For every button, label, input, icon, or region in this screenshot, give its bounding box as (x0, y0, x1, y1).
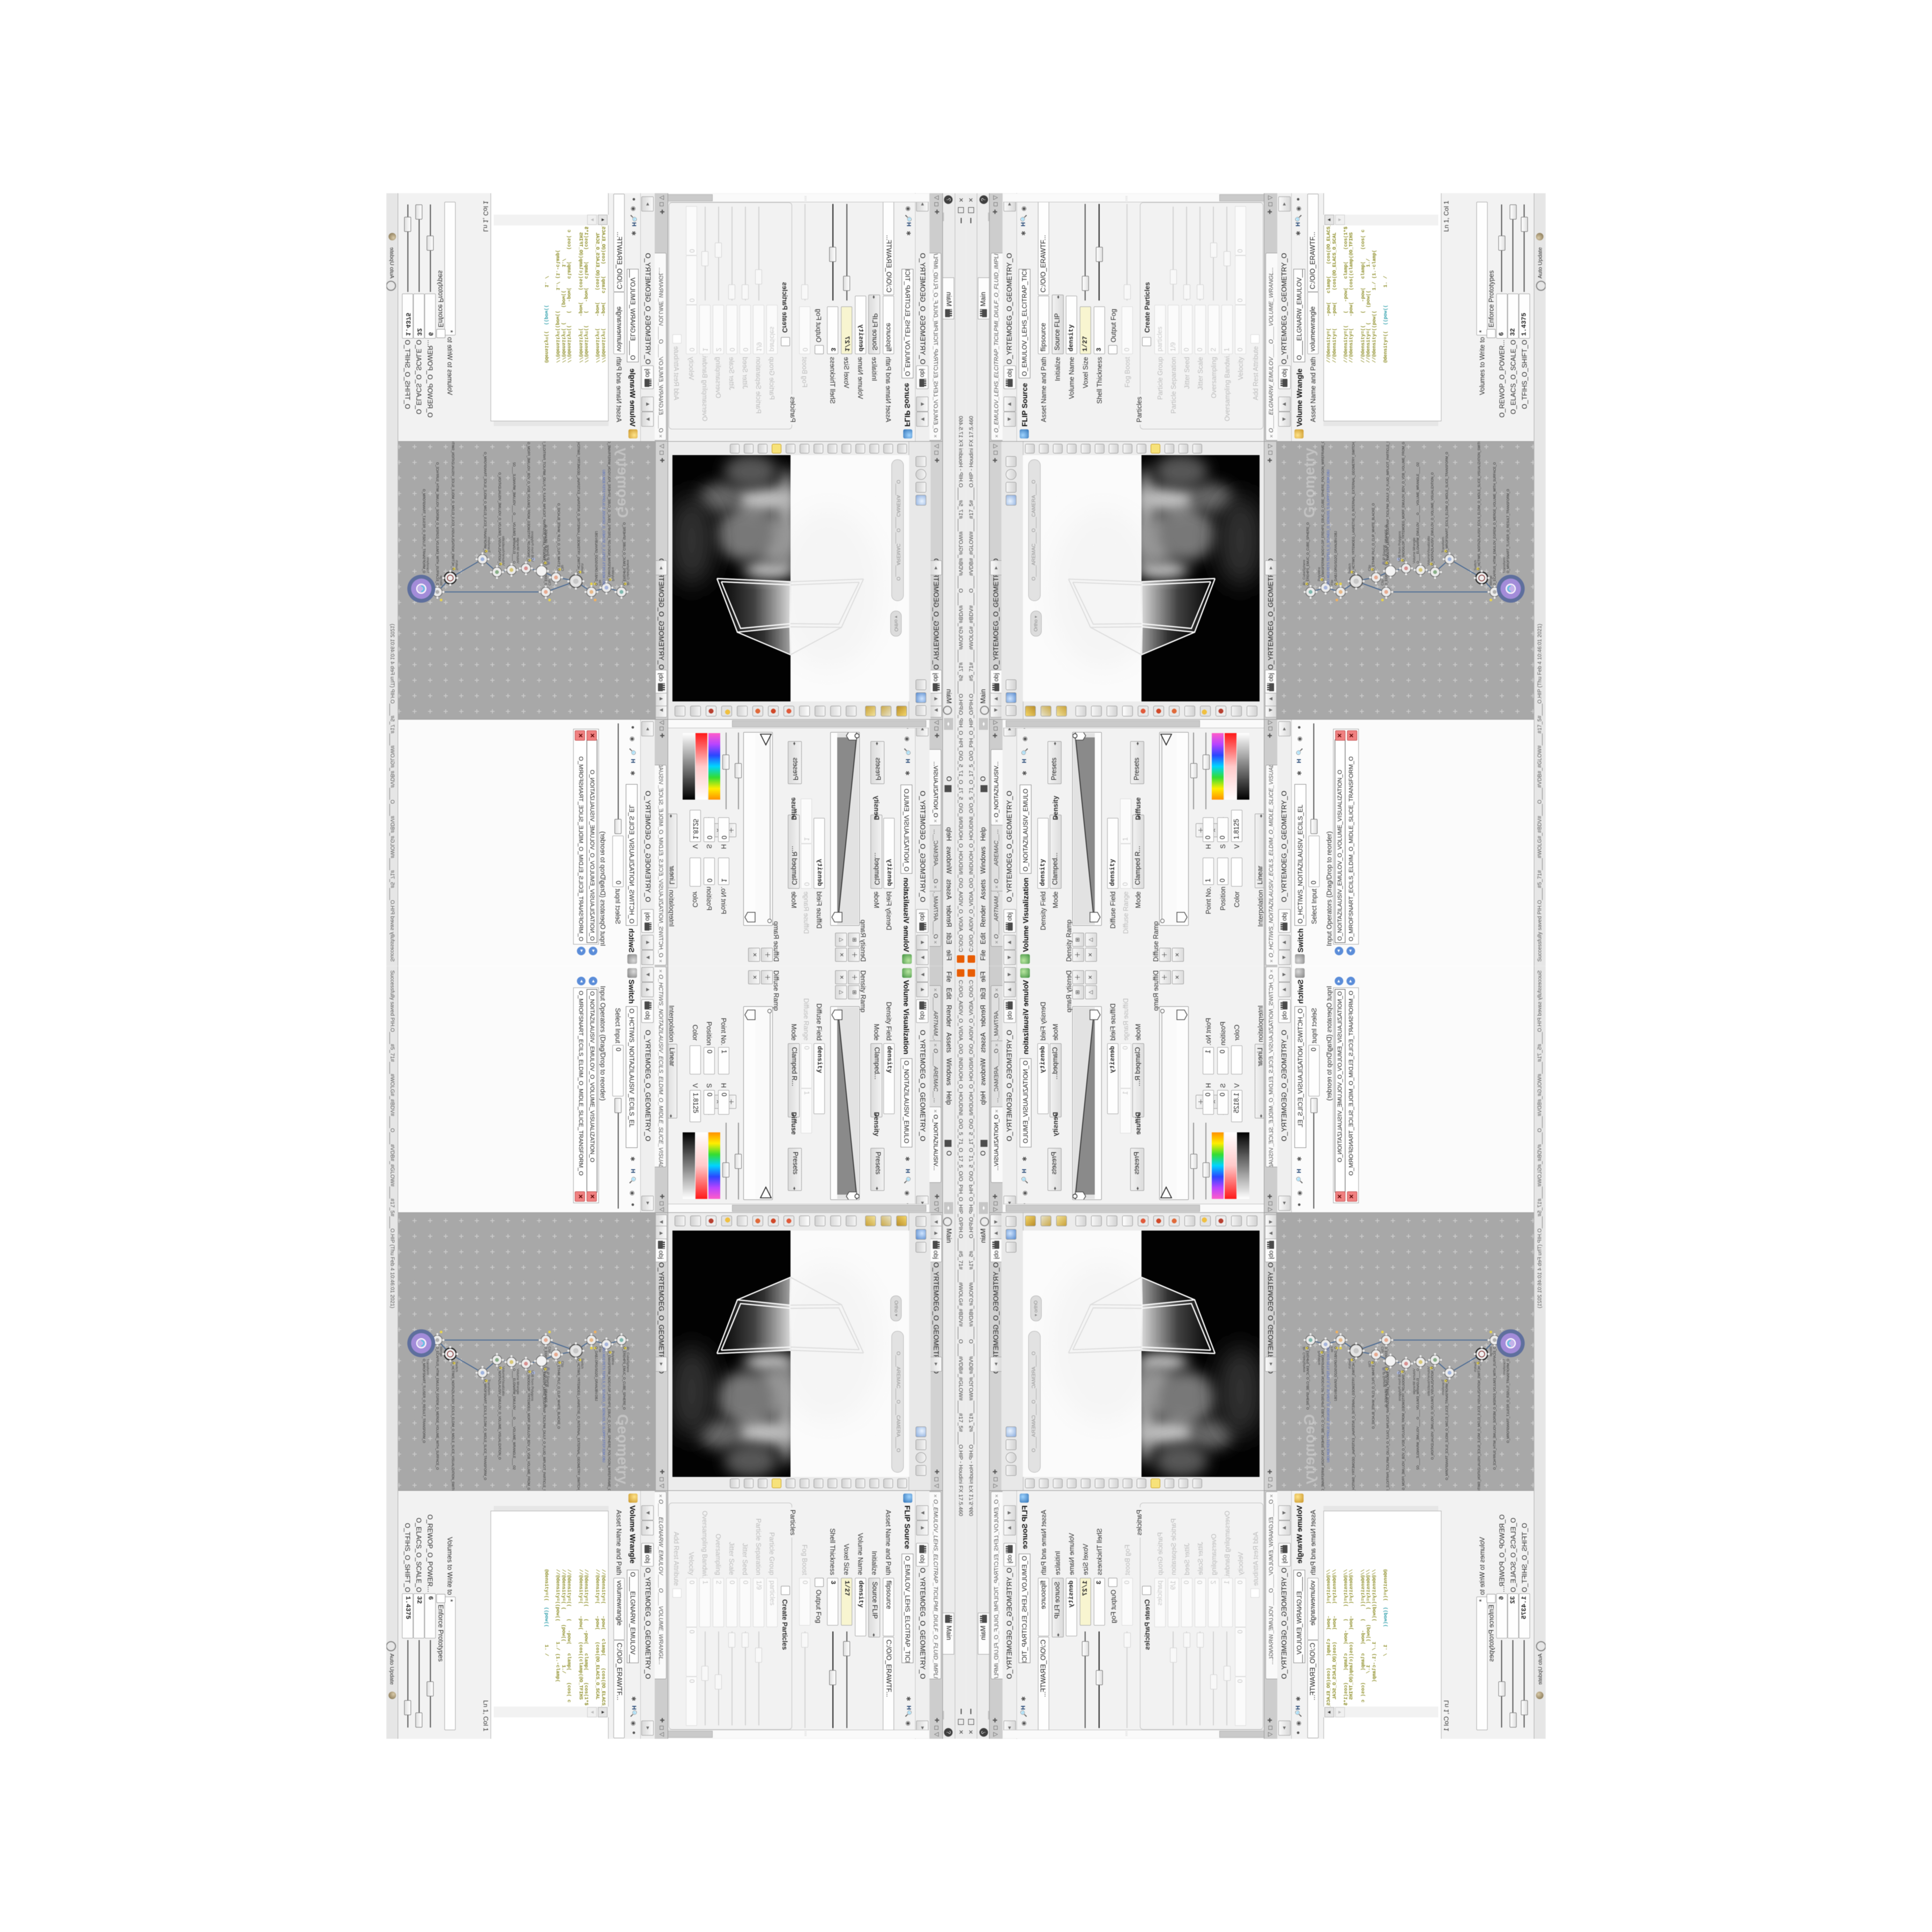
svg-text:an_CubeSphere: an_CubeSphere (626, 1346, 630, 1372)
svg-text:Switch: Switch (580, 563, 584, 574)
svg-text:Transform: Transform (487, 1379, 491, 1395)
svg-text:PolyWire: PolyWire (1318, 1351, 1321, 1365)
svg-text:O____ELGNARW_EMULOV____O____VO: O____ELGNARW_EMULOV____O____VOLUME_WRANG… (512, 1368, 515, 1470)
svg-text:Geometry: Geometry (1301, 448, 1318, 518)
svg-text:Switch: Switch (1348, 1358, 1352, 1369)
svg-text:VDB from Polygons: VDB from Polygons (530, 1370, 534, 1401)
svg-text:O_EMULOV_LEHS_ELCITRAP_TICILPM: O_EMULOV_LEHS_ELCITRAP_TICILPMI_DIULF_O_… (1387, 442, 1390, 565)
svg-text:Clip: Clip (547, 1346, 551, 1353)
svg-text:O_EREHPS_EMUC_O_CUBE_SPHERE_O: O_EREHPS_EMUC_O_CUBE_SPHERE_O (1307, 522, 1310, 586)
svg-text:PolyWire: PolyWire (611, 1351, 614, 1365)
svg-text:Volume Wrangle: Volume Wrangle (1413, 537, 1416, 563)
svg-text:O_NOITAZILAUSIV_EMULOV_O_VOLUM: O_NOITAZILAUSIV_EMULOV_O_VOLUME_VISUALIZ… (497, 472, 501, 566)
svg-text:Volume Wrangle: Volume Wrangle (516, 1368, 519, 1395)
svg-text:Clip: Clip (560, 1361, 564, 1367)
svg-text:PolyWire: PolyWire (611, 567, 614, 581)
svg-text:O_EREHPS_EMUC_O_CUBE_SPHERE_O: O_EREHPS_EMUC_O_CUBE_SPHERE_O (1307, 1346, 1310, 1410)
svg-text:FLIP Source: FLIP Source (546, 545, 550, 565)
svg-text:O_ECAFRUS_HTIW_EMULOV_EGREM_O_: O_ECAFRUS_HTIW_EMULOV_EGREM_O_MERGE_VOLU… (435, 462, 438, 586)
svg-text:O_EMASFERIW_NOGYLOP_EREHPS_EBU: O_EMASFERIW_NOGYLOP_EREHPS_EBUC_O_CUBE_S… (607, 1351, 610, 1490)
svg-text:O____ELGNARW_EMULOV____O____VO: O____ELGNARW_EMULOV____O____VOLUME_WRANG… (1417, 462, 1420, 563)
svg-text:Transform: Transform (1503, 557, 1506, 573)
svg-text:FLIP Source: FLIP Source (1382, 545, 1386, 565)
svg-text:Transform: Transform (1441, 1379, 1445, 1395)
svg-text:O_SNOGILOP_YRTEMOEG_MORF_EMULO: O_SNOGILOP_YRTEMOEG_MORF_EMULOV_BDV_O_VD… (526, 442, 530, 562)
svg-text:Merge: Merge (1489, 1346, 1493, 1357)
svg-text:Switch: Switch (1474, 1362, 1477, 1372)
svg-text:O_HCTIWS_NOITAZILAUSIV_ECILS_E: O_HCTIWS_NOITAZILAUSIV_ECILS_ELDIM_O_MID… (451, 442, 454, 570)
svg-text:O_MROFSNART_TLUSER_O_RESULT_TR: O_MROFSNART_TLUSER_O_RESULT_TRANSFORM_O (422, 489, 425, 573)
svg-text:O_MROFSNART_ECILS_ELDIM_O_MIDL: O_MROFSNART_ECILS_ELDIM_O_MIDLE_SLICE_TR… (1446, 1379, 1449, 1480)
svg-text:O_DABJ.ORG/SG2O_GRANJBV.OBJ: O_DABJ.ORG/SG2O_GRANJBV.OBJ (1335, 1346, 1338, 1401)
svg-text:File: File (1330, 580, 1334, 586)
svg-text:VolumeVisualizatio: VolumeVisualizatio (1427, 1366, 1431, 1396)
svg-text:Transform: Transform (1503, 1359, 1506, 1375)
svg-text:JBO.MD3.PETS.TEPELS_O_5DJNEG_O: JBO.MD3.PETS.TEPELS_O_5DJNEG_O_GENUS5_D.… (602, 1346, 605, 1462)
svg-text:Clip: Clip (1381, 579, 1385, 586)
svg-text:Merge: Merge (439, 575, 443, 586)
svg-text:an_CubeSphere: an_CubeSphere (1302, 1346, 1306, 1372)
svg-text:Switch: Switch (580, 1358, 584, 1369)
svg-text:File: File (598, 580, 602, 586)
svg-text:O_SNOGILOP_YRTEMOEG_MORF_EMULO: O_SNOGILOP_YRTEMOEG_MORF_EMULOV_BDV_O_VD… (1402, 442, 1406, 562)
svg-text:O_EMASFERIW_NOGYLOP_EREHPS_EBU: O_EMASFERIW_NOGYLOP_EREHPS_EBUC_O_CUBE_S… (607, 442, 610, 581)
svg-text:Geometry: Geometry (1301, 1414, 1318, 1484)
svg-text:Clip: Clip (547, 579, 551, 586)
svg-text:JBO.MD3.PETS.TEPELS_O_5DJNEG_O: JBO.MD3.PETS.TEPELS_O_5DJNEG_O_GENUS5_D.… (602, 470, 605, 586)
svg-text:Merge: Merge (1489, 575, 1493, 586)
svg-text:FLIP Source: FLIP Source (546, 1367, 550, 1387)
svg-text:O_EMASFERIW_NOGYLOP_EREHPS_EBU: O_EMASFERIW_NOGYLOP_EREHPS_EBUC_O_CUBE_S… (1322, 442, 1325, 581)
svg-text:O_HCTIWS_YRTEMOEG_LANRETXE_O_I: O_HCTIWS_YRTEMOEG_LANRETXE_O_INTERNAL_EX… (576, 442, 580, 574)
svg-text:Clip: Clip (1368, 1361, 1372, 1367)
svg-text:O_EMASFERIW_NOGYLOP_EREHPS_EBU: O_EMASFERIW_NOGYLOP_EREHPS_EBUC_O_CUBE_S… (1322, 1351, 1325, 1490)
svg-text:O_HCTIWS_YRTEMOEG_LANRETXE_O_I: O_HCTIWS_YRTEMOEG_LANRETXE_O_INTERNAL_EX… (576, 1358, 580, 1490)
svg-text:VolumeVisualizatio: VolumeVisualizatio (501, 1366, 505, 1396)
svg-text:Switch: Switch (455, 1362, 458, 1372)
svg-text:Transform: Transform (426, 557, 429, 573)
svg-text:Transform: Transform (426, 1359, 429, 1375)
svg-text:O_EREHPS_EMUC_O_CUBE_SPHERE_O: O_EREHPS_EMUC_O_CUBE_SPHERE_O (622, 1346, 625, 1410)
svg-text:O_MROFSNART_ECILS_ELDIM_O_MIDL: O_MROFSNART_ECILS_ELDIM_O_MIDLE_SLICE_TR… (483, 452, 486, 553)
svg-text:O_EMULOV_LEHS_ELCITRAP_TICILPM: O_EMULOV_LEHS_ELCITRAP_TICILPMI_DIULF_O_… (542, 442, 545, 565)
svg-text:O_ETIHW_PILC_O_CLIP_WHITE_BLAC: O_ETIHW_PILC_O_CLIP_WHITE_BLACKE_O (1372, 1361, 1375, 1429)
svg-text:O_MROFSNART_TLUSER_O_RESULT_TR: O_MROFSNART_TLUSER_O_RESULT_TRANSFORM_O (1507, 489, 1510, 573)
svg-text:O_ETIHW_PILC_O_CLIP_WHITE_BLAC: O_ETIHW_PILC_O_CLIP_WHITE_BLACKE_O (1372, 503, 1375, 571)
svg-text:O_DABJ.ORG/SG2O_GRANJBV.OBJ: O_DABJ.ORG/SG2O_GRANJBV.OBJ (594, 531, 597, 586)
svg-text:O_SNOGILOP_YRTEMOEG_MORF_EMULO: O_SNOGILOP_YRTEMOEG_MORF_EMULOV_BDV_O_VD… (526, 1370, 530, 1490)
svg-text:O_MROFSNART_TLUSER_O_RESULT_TR: O_MROFSNART_TLUSER_O_RESULT_TRANSFORM_O (422, 1359, 425, 1443)
svg-text:VolumeVisualizatio: VolumeVisualizatio (501, 536, 505, 566)
svg-text:O_ETIHW_PILC_O_CLIP_WHITE_BLAC: O_ETIHW_PILC_O_CLIP_WHITE_BLACKE_O (557, 1361, 560, 1429)
svg-text:File: File (1330, 1346, 1334, 1352)
svg-text:O____ELGNARW_EMULOV____O____VO: O____ELGNARW_EMULOV____O____VOLUME_WRANG… (1417, 1368, 1420, 1470)
svg-text:O_HCTIWS_NOITAZILAUSIV_ECILS_E: O_HCTIWS_NOITAZILAUSIV_ECILS_ELDIM_O_MID… (1478, 442, 1481, 570)
svg-text:Transform: Transform (487, 537, 491, 553)
svg-text:O_MROFSNART_TLUSER_O_RESULT_TR: O_MROFSNART_TLUSER_O_RESULT_TRANSFORM_O (1507, 1359, 1510, 1443)
svg-text:O_ETIHW_PILC_O_CLIP_WHITE_BLAC: O_ETIHW_PILC_O_CLIP_WHITE_BLACKE_O (557, 503, 560, 571)
svg-text:Geometry: Geometry (614, 1414, 631, 1484)
svg-text:File: File (598, 1346, 602, 1352)
svg-text:Merge: Merge (439, 1346, 443, 1357)
svg-text:O_EREHPS_EMUC_O_CUBE_SPHERE_O: O_EREHPS_EMUC_O_CUBE_SPHERE_O (622, 522, 625, 586)
svg-text:O_ECAFRUS_HTIW_EMULOV_EGREM_O_: O_ECAFRUS_HTIW_EMULOV_EGREM_O_MERGE_VOLU… (435, 1346, 438, 1470)
svg-text:Volume Wrangle: Volume Wrangle (1413, 1368, 1416, 1395)
svg-text:O_NOITAZILAUSIV_EMULOV_O_VOLUM: O_NOITAZILAUSIV_EMULOV_O_VOLUME_VISUALIZ… (1431, 1366, 1435, 1460)
svg-text:O_ECAFRUS_HTIW_EMULOV_EGREM_O_: O_ECAFRUS_HTIW_EMULOV_EGREM_O_MERGE_VOLU… (1494, 1346, 1497, 1470)
svg-text:Switch: Switch (1348, 563, 1352, 574)
svg-text:Clip: Clip (1368, 565, 1372, 571)
svg-text:O_SNOGILOP_YRTEMOEG_MORF_EMULO: O_SNOGILOP_YRTEMOEG_MORF_EMULOV_BDV_O_VD… (1402, 1370, 1406, 1490)
svg-text:O_NOITAZILAUSIV_EMULOV_O_VOLUM: O_NOITAZILAUSIV_EMULOV_O_VOLUME_VISUALIZ… (1431, 472, 1435, 566)
svg-text:VDB from Polygons: VDB from Polygons (1398, 1370, 1402, 1401)
svg-text:Geometry: Geometry (614, 448, 631, 518)
svg-text:O_EMULOV_LEHS_ELCITRAP_TICILPM: O_EMULOV_LEHS_ELCITRAP_TICILPMI_DIULF_O_… (1387, 1367, 1390, 1490)
svg-text:VDB from Polygons: VDB from Polygons (530, 531, 534, 562)
svg-text:Clip: Clip (1381, 1346, 1385, 1353)
svg-text:O_HCTIWS_YRTEMOEG_LANRETXE_O_I: O_HCTIWS_YRTEMOEG_LANRETXE_O_INTERNAL_EX… (1352, 1358, 1356, 1490)
svg-text:Switch: Switch (455, 560, 458, 570)
svg-text:JBO.MD3.PETS.TEPELS_O_5DJNEG_O: JBO.MD3.PETS.TEPELS_O_5DJNEG_O_GENUS5_D.… (1327, 470, 1330, 586)
svg-text:O_HCTIWS_NOITAZILAUSIV_ECILS_E: O_HCTIWS_NOITAZILAUSIV_ECILS_ELDIM_O_MID… (451, 1362, 454, 1490)
svg-text:O_ECAFRUS_HTIW_EMULOV_EGREM_O_: O_ECAFRUS_HTIW_EMULOV_EGREM_O_MERGE_VOLU… (1494, 462, 1497, 586)
svg-text:O____ELGNARW_EMULOV____O____VO: O____ELGNARW_EMULOV____O____VOLUME_WRANG… (512, 462, 515, 563)
svg-text:Switch: Switch (1474, 560, 1477, 570)
svg-text:O_NOITAZILAUSIV_EMULOV_O_VOLUM: O_NOITAZILAUSIV_EMULOV_O_VOLUME_VISUALIZ… (497, 1366, 501, 1460)
svg-text:JBO.MD3.PETS.TEPELS_O_5DJNEG_O: JBO.MD3.PETS.TEPELS_O_5DJNEG_O_GENUS5_D.… (1327, 1346, 1330, 1462)
svg-text:an_CubeSphere: an_CubeSphere (1302, 560, 1306, 586)
svg-text:O_HCTIWS_YRTEMOEG_LANRETXE_O_I: O_HCTIWS_YRTEMOEG_LANRETXE_O_INTERNAL_EX… (1352, 442, 1356, 574)
svg-text:PolyWire: PolyWire (1318, 567, 1321, 581)
svg-text:FLIP Source: FLIP Source (1382, 1367, 1386, 1387)
svg-text:an_CubeSphere: an_CubeSphere (626, 560, 630, 586)
svg-text:O_HCTIWS_NOITAZILAUSIV_ECILS_E: O_HCTIWS_NOITAZILAUSIV_ECILS_ELDIM_O_MID… (1478, 1362, 1481, 1490)
svg-text:O_DABJ.ORG/SG2O_GRANJBV.OBJ: O_DABJ.ORG/SG2O_GRANJBV.OBJ (1335, 531, 1338, 586)
svg-text:O_DABJ.ORG/SG2O_GRANJBV.OBJ: O_DABJ.ORG/SG2O_GRANJBV.OBJ (594, 1346, 597, 1401)
svg-text:VolumeVisualizatio: VolumeVisualizatio (1427, 536, 1431, 566)
svg-text:VDB from Polygons: VDB from Polygons (1398, 531, 1402, 562)
svg-text:O_EMULOV_LEHS_ELCITRAP_TICILPM: O_EMULOV_LEHS_ELCITRAP_TICILPMI_DIULF_O_… (542, 1367, 545, 1490)
svg-text:O_MROFSNART_ECILS_ELDIM_O_MIDL: O_MROFSNART_ECILS_ELDIM_O_MIDLE_SLICE_TR… (1446, 452, 1449, 553)
svg-text:Volume Wrangle: Volume Wrangle (516, 537, 519, 563)
svg-text:Clip: Clip (560, 565, 564, 571)
svg-text:Transform: Transform (1441, 537, 1445, 553)
svg-text:O_MROFSNART_ECILS_ELDIM_O_MIDL: O_MROFSNART_ECILS_ELDIM_O_MIDLE_SLICE_TR… (483, 1379, 486, 1480)
